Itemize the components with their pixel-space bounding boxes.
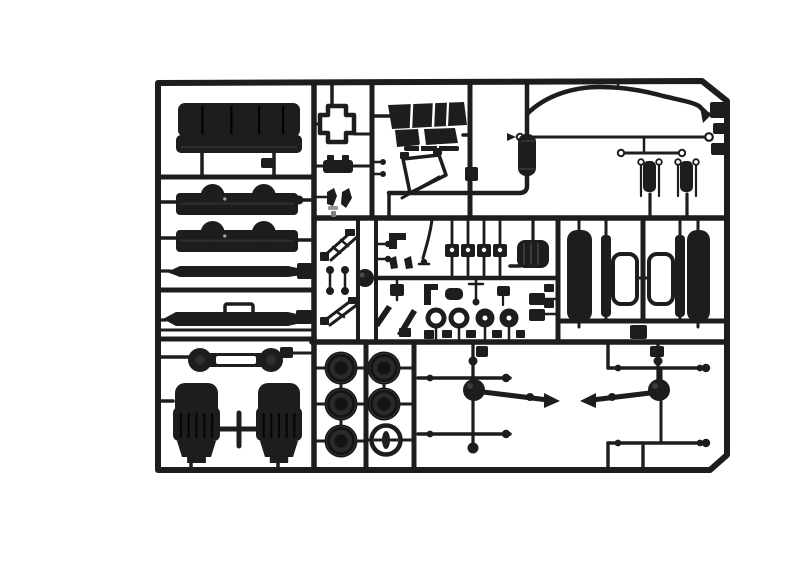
model-kit-sprue-photo [40, 16, 800, 546]
part-tbracket-b [544, 300, 554, 308]
cab-floor-slit-a [411, 104, 412, 127]
part-clip [497, 286, 510, 296]
pin-hole-2 [466, 248, 470, 252]
mirror-tab-a [400, 152, 409, 159]
part-axle-r-ball-joint [648, 379, 670, 401]
part-muffler-bracket-loop [225, 304, 253, 314]
axle-l-link-ball [468, 443, 479, 454]
shock-ring-b2 [693, 159, 699, 165]
part-tire-4-hub [377, 361, 390, 374]
ladder1-top [345, 229, 355, 236]
axle-l-brod-collar-a [427, 431, 434, 438]
part-tire-3-hub [334, 434, 347, 447]
ballpin-b-bottom [341, 287, 349, 295]
mirror-tab-b [433, 148, 442, 155]
part-tire-5-hub [377, 397, 390, 410]
part-side-sill [167, 266, 302, 277]
axle-r-shaft-collar [608, 393, 616, 401]
ladder2-top [348, 297, 358, 304]
part-spring-strip-a [601, 235, 611, 317]
part-cab-strip [404, 146, 459, 151]
part-seat-bracket [261, 158, 273, 168]
pin-hole-1 [450, 248, 454, 252]
ladder2-foot [320, 317, 329, 325]
part-cab-floor [388, 102, 467, 129]
part-metal-clip-a [328, 206, 338, 210]
lever-foot-a [399, 328, 411, 337]
pin-hole-4 [498, 248, 502, 252]
part-lever-a [327, 188, 337, 206]
axle-r-rod-ball [702, 364, 710, 372]
part-linkage-eye-d [679, 150, 685, 156]
axle-l-shaft-tip [544, 393, 560, 408]
gate-foot-1 [442, 330, 452, 338]
part-exhaust-pipe-long [527, 87, 706, 114]
part-wheel-hub-b-hole [454, 313, 465, 324]
part-bench-seat-cushion [176, 135, 302, 153]
tiny-pin-ball-a [385, 241, 391, 247]
part-knob [356, 269, 374, 287]
ladder1-rung-a [333, 247, 340, 253]
band-junction-block [630, 325, 647, 339]
runner-junction-block [465, 167, 478, 181]
gate-foot-2 [466, 330, 476, 338]
ballpin-b-top [341, 266, 349, 274]
cab-floor-slit-b [433, 103, 434, 126]
edge-block-a [710, 102, 727, 118]
part-grille-tab [280, 347, 293, 358]
part-leaf-spring-slab-a [567, 230, 592, 322]
axle-l-rod-collar-a [427, 375, 434, 382]
gate-foot-3 [492, 330, 502, 338]
axle-r-shaft-tip [580, 393, 596, 408]
mount-block-bump-a [327, 155, 334, 161]
part-tbracket-a [544, 284, 554, 292]
part-linkage-eye-b [705, 133, 713, 141]
linkage-barb [507, 133, 516, 141]
part-square-a [529, 293, 545, 305]
part-bucket-seat-left-skirt [177, 441, 216, 457]
shock-ring-a1 [638, 159, 644, 165]
part-spring-strip-b [675, 235, 685, 317]
pod-hub-left [195, 355, 205, 365]
axle-r-ball-highlight [652, 383, 658, 389]
mirror-ball-b [380, 171, 386, 177]
part-sill-end-block [297, 263, 312, 279]
part-tire-1-hub [334, 361, 347, 374]
part-cross-bracket [320, 106, 354, 142]
ladder1-rung-b [341, 240, 348, 246]
part-chassis-panel-1-glint [223, 197, 226, 200]
part-mirror-frame [403, 155, 446, 193]
shock-ring-b1 [675, 159, 681, 165]
part-knob-highlight [360, 273, 365, 278]
axle-l-kingpin-ball [469, 357, 478, 366]
part-grille-cutout [216, 356, 256, 364]
cooler-pipe [510, 256, 520, 266]
part-brake-drum-b-hole [507, 316, 512, 321]
bent-rod-ball [421, 259, 427, 265]
part-door-frame-b [649, 254, 673, 304]
part-bucket-seat-right-skirt [260, 441, 298, 457]
shock-ring-a2 [656, 159, 662, 165]
part-bent-rod [423, 220, 432, 258]
mount-block-bump-b [342, 155, 349, 161]
part-axle-l-driveshaft [483, 392, 548, 400]
part-shock-cylinder-a [643, 161, 656, 192]
part-cab-lower-a [395, 129, 420, 147]
part-brake-drum-a-hole [483, 316, 488, 321]
axle-l-rod-ball-b [502, 374, 510, 382]
cab-floor-slit-c [447, 103, 448, 125]
part-foot-b [404, 256, 413, 269]
axle-l-top-block [476, 346, 488, 357]
ballpin-a-top [326, 266, 334, 274]
part-chassis-panel-2-glint [223, 234, 226, 237]
lever-foot-b [424, 330, 434, 339]
part-cab-lower-b [424, 128, 458, 145]
axle-r-brod-ball [702, 439, 710, 447]
axle-l-shaft-collar [526, 393, 534, 401]
axle-r-brod-collar-a [615, 440, 622, 447]
axle-r-rod-collar-a [615, 365, 622, 372]
edge-block-c [711, 143, 727, 155]
part-mount-block [323, 160, 353, 173]
part-metal-clip-b [331, 211, 336, 217]
ladder1-foot [320, 252, 329, 261]
part-wheel-hub-a-hole [431, 313, 442, 324]
part-pad [445, 288, 463, 300]
part-door-frame-a [613, 254, 637, 304]
part-tire-2-hub [334, 397, 347, 410]
part-shock-cylinder-b [680, 161, 693, 192]
pod-hub-right [266, 355, 276, 365]
gate-ball-panel1 [295, 196, 304, 205]
gate-muffler-block [296, 310, 312, 324]
part-axle-r-driveshaft [592, 393, 650, 400]
pin-c-block [390, 284, 404, 296]
mirror-ball-a [380, 159, 386, 165]
axle-l-ball-highlight [467, 383, 473, 389]
part-bracket-b [424, 284, 438, 305]
part-square-b [529, 309, 545, 321]
part-linkage-eye-c [618, 150, 624, 156]
part-lever-b [341, 188, 352, 208]
part-leaf-spring-slab-b [687, 230, 710, 322]
gate-foot-4 [516, 330, 525, 338]
axle-l-brod-ball-b [502, 430, 510, 438]
part-bracket-a [389, 233, 406, 249]
axle-r-kingpin-ball [654, 357, 663, 366]
edge-block-b [713, 123, 727, 134]
part-oil-cooler [517, 240, 549, 268]
part-steering-wheel-hub [382, 431, 390, 449]
pin-hole-3 [482, 248, 486, 252]
ballpin-a-bottom [326, 287, 334, 295]
part-bench-seat-backrest [178, 103, 300, 137]
sprue-svg [40, 16, 800, 546]
tpin-ball [473, 299, 480, 306]
